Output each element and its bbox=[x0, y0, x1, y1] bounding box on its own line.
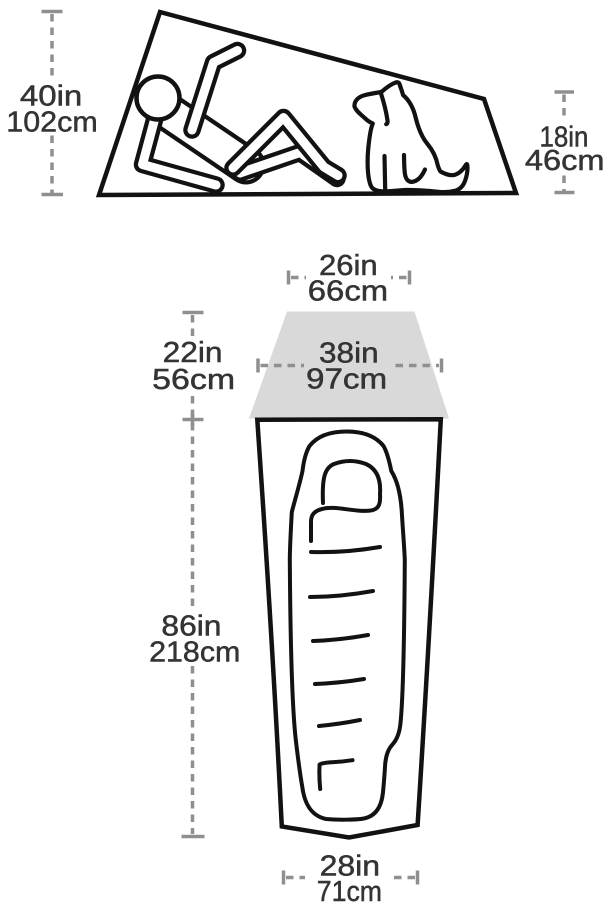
svg-text:46cm: 46cm bbox=[525, 145, 605, 177]
svg-text:97cm: 97cm bbox=[306, 364, 387, 396]
svg-text:71cm: 71cm bbox=[317, 876, 382, 908]
svg-text:218cm: 218cm bbox=[149, 637, 240, 669]
svg-text:66cm: 66cm bbox=[308, 276, 388, 308]
svg-text:56cm: 56cm bbox=[152, 364, 235, 396]
svg-text:102cm: 102cm bbox=[6, 106, 97, 138]
